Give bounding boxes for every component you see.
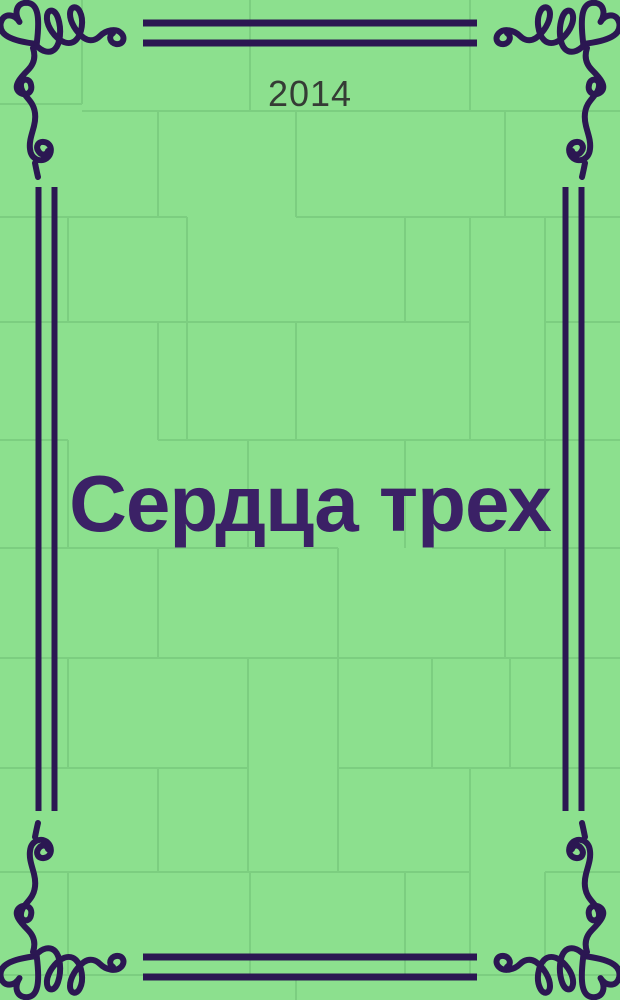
book-cover: 2014 Сердца трех xyxy=(0,0,620,1000)
book-title: Сердца трех xyxy=(0,462,620,546)
year-label: 2014 xyxy=(0,74,620,114)
double-rule-top xyxy=(143,23,477,43)
corner-flourish-bottom-left xyxy=(0,823,123,1000)
corner-flourish-bottom-right xyxy=(497,823,620,1000)
double-rule-bottom xyxy=(143,957,477,977)
